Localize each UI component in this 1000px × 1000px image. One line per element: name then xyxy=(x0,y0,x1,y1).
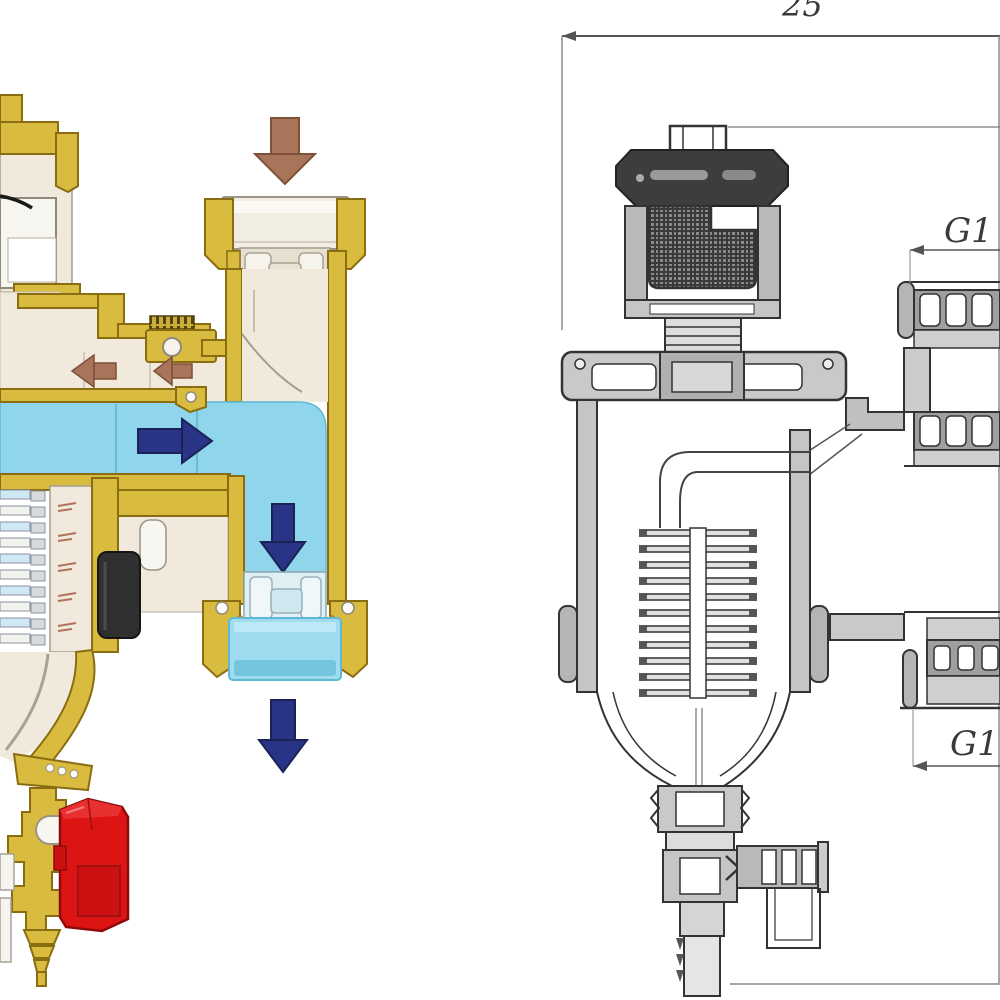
drain-valve xyxy=(0,754,128,986)
air-vent-section xyxy=(616,126,788,352)
internal-pipe xyxy=(660,452,810,528)
illustration-canvas: 25 xyxy=(0,0,1000,1000)
vent-wall-left xyxy=(625,206,647,310)
dimension-lines: 25 xyxy=(562,0,1000,983)
vent-thread-neck xyxy=(665,318,741,352)
separator-element xyxy=(0,478,140,652)
element-rod xyxy=(690,528,706,698)
body-flange xyxy=(562,352,846,400)
engineering-drawing-panel: 25 xyxy=(500,0,1000,1000)
body-wall-left xyxy=(577,400,597,692)
upper-port-label: G1 xyxy=(944,211,993,251)
port-wall-left xyxy=(226,269,242,402)
drain-section xyxy=(651,786,1000,996)
outlet-flow-arrow xyxy=(259,700,307,772)
outlet-union xyxy=(203,572,367,772)
inlet-flow-arrow xyxy=(255,118,315,184)
upper-port-dimension: G1 xyxy=(910,211,1000,284)
lower-port-pipe xyxy=(830,614,904,640)
collection-chamber xyxy=(597,692,790,786)
hose-spigot xyxy=(676,936,720,996)
hose-barb xyxy=(24,930,60,986)
element-fins xyxy=(0,490,45,645)
lower-port-dimension: G1 xyxy=(913,710,1000,771)
retaining-clip xyxy=(150,316,194,329)
port-wall-right xyxy=(328,251,346,604)
top-dimension-text: 25 xyxy=(781,0,823,24)
colored-cutaway-panel xyxy=(0,0,500,1000)
upper-air-chamber xyxy=(0,292,228,402)
drain-handle-red xyxy=(60,799,128,931)
body-wall-right xyxy=(790,430,810,692)
vent-orifice xyxy=(163,338,181,356)
lower-port xyxy=(900,612,1000,708)
upper-port xyxy=(898,282,1000,466)
channel-top-wall xyxy=(0,389,178,402)
vent-wall-right xyxy=(758,206,780,310)
element-section xyxy=(639,528,757,698)
float-crosshatch xyxy=(649,206,756,288)
downpipe-wall-left xyxy=(228,476,244,604)
lower-port-label: G1 xyxy=(950,724,999,764)
